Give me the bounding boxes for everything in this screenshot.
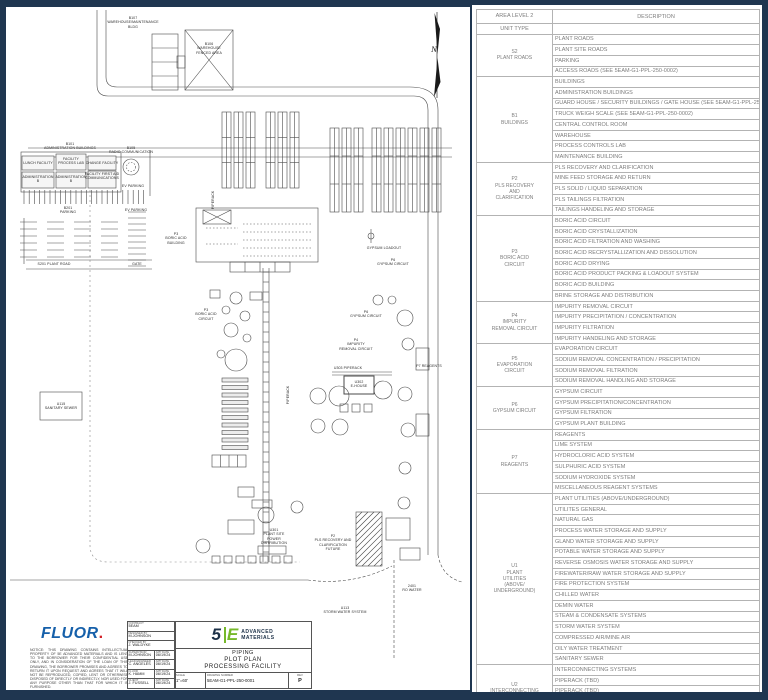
description-cell: MAINTENANCE BUILDING xyxy=(553,152,760,163)
description-cell: PIPERACK (TBD) xyxy=(553,675,760,686)
description-cell: PROCESS CONTROLS LAB xyxy=(553,141,760,152)
description-cell: IMPURITY FILTRATION xyxy=(553,323,760,334)
drawing-title: PIPING PLOT PLAN PROCESSING FACILITY xyxy=(175,648,311,672)
drawing-sheet: NB107 WAREHOUSE/MAINTENANCE BLDGB106 WAR… xyxy=(4,5,472,692)
header-unit-type: UNIT TYPE xyxy=(477,24,553,35)
description-cell: GYPSUM PLANT BUILDING xyxy=(553,419,760,430)
table-row: P5 EVAPORATION CIRCUITEVAPORATION CIRCUI… xyxy=(477,344,760,355)
description-cell: PIPERACK (TBD) xyxy=(553,686,760,697)
change-facility-label: CHANGE FACILITY xyxy=(86,161,119,165)
unit-type-cell: S2 PLANT ROADS xyxy=(477,34,553,77)
plot-labels-layer: NB107 WAREHOUSE/MAINTENANCE BLDGB106 WAR… xyxy=(6,7,470,690)
description-cell: BORIC ACID CIRCUIT xyxy=(553,216,760,227)
u302-ehouse-label: U302 E-HOUSE xyxy=(351,380,368,389)
revision-cell: REV P xyxy=(289,673,311,688)
description-cell: PROCESS WATER STORAGE AND SUPPLY xyxy=(553,526,760,537)
signature-row: FLUORK. HAMMAPP DATE06/19/24 xyxy=(128,670,175,680)
description-cell: DEMIN WATER xyxy=(553,600,760,611)
description-cell: INTERCONNECTING SYSTEMS xyxy=(553,665,760,676)
table-row: P2 PLS RECOVERY AND CLARIFICATIONPLS REC… xyxy=(477,162,760,173)
lunch-facility-label: LUNCH FACILITY xyxy=(23,161,53,165)
description-cell: GLAND WATER STORAGE AND SUPPLY xyxy=(553,536,760,547)
description-cell: WAREHOUSE xyxy=(553,130,760,141)
unit-type-cell: P7 REAGENTS xyxy=(477,429,553,493)
description-cell: STORM WATER SYSTEM xyxy=(553,622,760,633)
unit-type-cell: U1 PLANT UTILITIES (ABOVE/ UNDERGROUND) xyxy=(477,494,553,665)
gate-label: GATE xyxy=(132,262,142,266)
description-cell: COMPRESSED AIR/MINE AIR xyxy=(553,633,760,644)
description-cell: PLANT SITE ROADS xyxy=(553,45,760,56)
signature-row: DESIGNED BYM.JOHNSON xyxy=(128,632,175,642)
table-row: P6 GYPSUM CIRCUITGYPSUM CIRCUIT xyxy=(477,387,760,398)
p2-future-label: P2 PLS RECOVERY AND CLARIFICATION FUTURE xyxy=(315,534,352,551)
description-cell: IMPURITY PRECIPITATION / CONCENTRATION xyxy=(553,312,760,323)
process-lab-label: FACILITY PROCESS LAB xyxy=(58,157,84,166)
unit-type-cell: P2 PLS RECOVERY AND CLARIFICATION xyxy=(477,162,553,215)
signature-row: SUPERVISORM.JOHNSONAPP DATE06/19/24 xyxy=(128,651,175,661)
description-cell: OILY WATER TREATMENT xyxy=(553,643,760,654)
description-cell: SULPHURIC ACID SYSTEM xyxy=(553,462,760,473)
p3-circuit-label: P3 BORIC ACID CIRCUIT xyxy=(195,308,216,321)
description-cell: BRINE STORAGE AND DISTRIBUTION xyxy=(553,291,760,302)
table-row: U2 INTERCONNECTING SYSTEMSINTERCONNECTIN… xyxy=(477,665,760,676)
s201-plant-road-label: S201 PLANT ROAD xyxy=(38,262,71,266)
description-cell: IMPURITY HANDELING AND STORAGE xyxy=(553,333,760,344)
p6-circuit-label: P6 GYPSUM CIRCUIT xyxy=(350,310,382,319)
fluor-logo-dot: . xyxy=(99,625,104,642)
description-cell: GUARD HOUSE / SECURITY BUILDINGS / GATE … xyxy=(553,98,760,109)
piperack-label-2: PIPERACK xyxy=(286,386,290,405)
first-aid-label: FACILITY FIRST AID COMMUNICATIONS xyxy=(85,172,120,181)
description-cell: BORIC ACID CRYSTALLIZATION xyxy=(553,226,760,237)
p3-building-label: P3 BORIC ACID BUILDING xyxy=(165,232,186,245)
description-cell: CENTRAL CONTROL ROOM xyxy=(553,120,760,131)
description-cell: STEAM & CONDENSATE SYSTEMS xyxy=(553,611,760,622)
table-row: PIPERACK (TBD) xyxy=(477,697,760,700)
north-label: N xyxy=(431,44,437,54)
description-cell: FIREWATER/RAW WATER STORAGE AND SUPPLY xyxy=(553,568,760,579)
description-cell: TAILINGS HANDELING AND STORAGE xyxy=(553,205,760,216)
description-cell: SODIUM REMOVAL HANDLING AND STORAGE xyxy=(553,376,760,387)
administration-b-label: ADMINISTRATION B xyxy=(55,175,86,184)
description-cell: CHILLED WATER xyxy=(553,590,760,601)
signature-row: CHECKED BYJ. WALDYKE xyxy=(128,641,175,651)
ro-water-label: 2401 RO WATER xyxy=(402,584,421,593)
unit-type-cell: B1 BUILDINGS xyxy=(477,77,553,163)
area-table-panel: AREA LEVEL 2 DESCRIPTION UNIT TYPE S2 PL… xyxy=(476,9,762,700)
gypsum-loadout-label: GYPSUM LOADOUT xyxy=(367,246,401,250)
drawing-number-cell: DRAWING NUMBER 5EAM-G1-PPL-250-0001 xyxy=(206,673,289,688)
b101-label: B101 ADMINISTRATION BUILDINGS xyxy=(44,142,96,151)
description-cell: SODIUM REMOVAL FILTRATION xyxy=(553,365,760,376)
area-table: AREA LEVEL 2 DESCRIPTION UNIT TYPE S2 PL… xyxy=(476,9,760,700)
unit-type-cell: P4 IMPURITY REMOVAL CIRCUIT xyxy=(477,301,553,344)
description-cell: SANITARY SEWER xyxy=(553,654,760,665)
brand-e: E xyxy=(224,627,238,642)
p4-circuit-label: P4 IMPURITY REMOVAL CIRCUIT xyxy=(339,338,372,351)
table-row: B1 BUILDINGSBUILDINGS xyxy=(477,77,760,88)
ev-parking-label-2: EV PARKING xyxy=(125,208,147,212)
unit-type-cell: P6 GYPSUM CIRCUIT xyxy=(477,387,553,430)
description-cell: GYPSUM PRECIPITATION/CONCENTRATION xyxy=(553,397,760,408)
scale-cell: SCALE 1"=60' xyxy=(175,673,206,688)
signature-table: CONTRACT5EAMDESIGNED BYM.JOHNSONCHECKED … xyxy=(127,621,176,689)
brand-name: ADVANCED MATERIALS xyxy=(241,629,274,641)
fluor-logo: FLUOR. xyxy=(41,625,104,643)
title-block: FLUOR. NOTICE: THIS DRAWING CONTAINS INT… xyxy=(6,617,470,690)
table-row: P4 IMPURITY REMOVAL CIRCUITIMPURITY REMO… xyxy=(477,301,760,312)
description-cell: PLANT ROADS xyxy=(553,34,760,45)
description-cell: GYPSUM FILTRATION xyxy=(553,408,760,419)
administration-a-label: ADMINISTRATION B xyxy=(22,175,53,184)
description-cell: BORIC ACID DRYING xyxy=(553,258,760,269)
description-cell: PLS SOLID / LIQUID SEPARATION xyxy=(553,184,760,195)
b105-label: B105 RADIO COMMUNICATION xyxy=(109,146,153,155)
b107-label: B107 WAREHOUSE/MAINTENANCE BLDG xyxy=(107,16,158,29)
description-cell: SODIUM REMOVAL CONCENTRATION / PRECIPITA… xyxy=(553,355,760,366)
description-cell: HYDROCLORIC ACID SYSTEM xyxy=(553,451,760,462)
description-cell: EVAPORATION CIRCUIT xyxy=(553,344,760,355)
table-row: P3 BORIC ACID CIRCUITBORIC ACID CIRCUIT xyxy=(477,216,760,227)
p7-reagents-label: P7 REAGENTS xyxy=(416,364,442,368)
description-cell: ADMINISTRATION BUILDINGS xyxy=(553,87,760,98)
table-row: P7 REAGENTSREAGENTS xyxy=(477,429,760,440)
screenshot-root: NB107 WAREHOUSE/MAINTENANCE BLDGB106 WAR… xyxy=(0,0,768,700)
description-cell: NATURAL GAS xyxy=(553,515,760,526)
description-cell: ACCESS ROADS (SEE 5EAM-G1-PPL-250-0002) xyxy=(553,66,760,77)
table-row: S2 PLANT ROADSPLANT ROADS xyxy=(477,34,760,45)
u115-sanitary-label: U115 SANITARY SEWER xyxy=(45,402,77,411)
u301-power-label: U301 PLANT SITE POWER DISTRIBUTION xyxy=(261,528,287,545)
unit-type-cell: P5 EVAPORATION CIRCUIT xyxy=(477,344,553,387)
description-cell: MISCELLANEOUS REAGENT SYSTEMS xyxy=(553,483,760,494)
u113-storm-label: U113 STORM WATER SYSTEM xyxy=(324,606,367,615)
description-cell: GYPSUM CIRCUIT xyxy=(553,387,760,398)
description-cell: REVERSE OSMOSIS WATER STORAGE AND SUPPLY xyxy=(553,558,760,569)
b106-label: B106 WAREHOUSE FENCED AREA xyxy=(196,42,222,55)
u303-piperack-label: U303 PIPERACK xyxy=(334,366,362,370)
description-cell: FIRE PROTECTION SYSTEM xyxy=(553,579,760,590)
description-cell: MINE FEED STORAGE AND RETURN xyxy=(553,173,760,184)
ev-parking-label-1: EV PARKING xyxy=(122,184,144,188)
signature-row: CLIENTJ. FUSSELLAPP DATE06/19/24 xyxy=(128,679,175,688)
5e-brand-logo: 5 E ADVANCED MATERIALS xyxy=(175,622,311,648)
description-cell: PLS RECOVERY AND CLARIFICATION xyxy=(553,162,760,173)
title-block-box: 5 E ADVANCED MATERIALS PIPING PLOT PLAN … xyxy=(174,621,312,689)
header-empty xyxy=(553,24,760,35)
description-cell: POTABLE WATER STORAGE AND SUPPLY xyxy=(553,547,760,558)
description-cell: TRUCK WEIGH SCALE (SEE 5EAM-G1-PPL-250-0… xyxy=(553,109,760,120)
description-cell: PIPERACK (TBD) xyxy=(553,697,760,700)
description-cell: PARKING xyxy=(553,55,760,66)
p6-area-label: P6 GYPSUM CIRCUIT xyxy=(377,258,409,267)
unit-type-cell: U2 INTERCONNECTING SYSTEMS xyxy=(477,665,553,700)
description-cell: BUILDINGS xyxy=(553,77,760,88)
description-cell: LIME SYSTEM xyxy=(553,440,760,451)
b201-label: B201 PARKING xyxy=(60,206,76,215)
description-cell: REAGENTS xyxy=(553,429,760,440)
unit-type-cell: P3 BORIC ACID CIRCUIT xyxy=(477,216,553,302)
piperack-label-1: PIPERACK xyxy=(211,191,215,210)
table-row: U1 PLANT UTILITIES (ABOVE/ UNDERGROUND)P… xyxy=(477,494,760,505)
header-description: DESCRIPTION xyxy=(553,10,760,24)
description-cell: IMPURITY REMOVAL CIRCUIT xyxy=(553,301,760,312)
brand-5: 5 xyxy=(211,625,220,645)
description-cell: BORIC ACID BUILDING xyxy=(553,280,760,291)
description-cell: BORIC ACID PRODUCT PACKING & LOADOUT SYS… xyxy=(553,269,760,280)
description-cell: PLANT UTILITIES (ABOVE/UNDERGROUND) xyxy=(553,494,760,505)
header-area-level: AREA LEVEL 2 xyxy=(477,10,553,24)
signature-row: CONTRACT5EAM xyxy=(128,622,175,632)
description-cell: PLS TAILINGS FILTRATION xyxy=(553,194,760,205)
signature-row: LEAD ENGINEERC. ANGELESAPP DATE06/19/24 xyxy=(128,660,175,670)
description-cell: UTILITES GENERAL xyxy=(553,504,760,515)
description-cell: BORIC ACID RECRYSTALLIZATION AND DISSOLU… xyxy=(553,248,760,259)
notice-text: NOTICE: THIS DRAWING CONTAINS INTELLECTU… xyxy=(30,648,128,689)
description-cell: SODIUM HYDROXIDE SYSTEM xyxy=(553,472,760,483)
description-cell: BORIC ACID FILTRATION AND WASHING xyxy=(553,237,760,248)
